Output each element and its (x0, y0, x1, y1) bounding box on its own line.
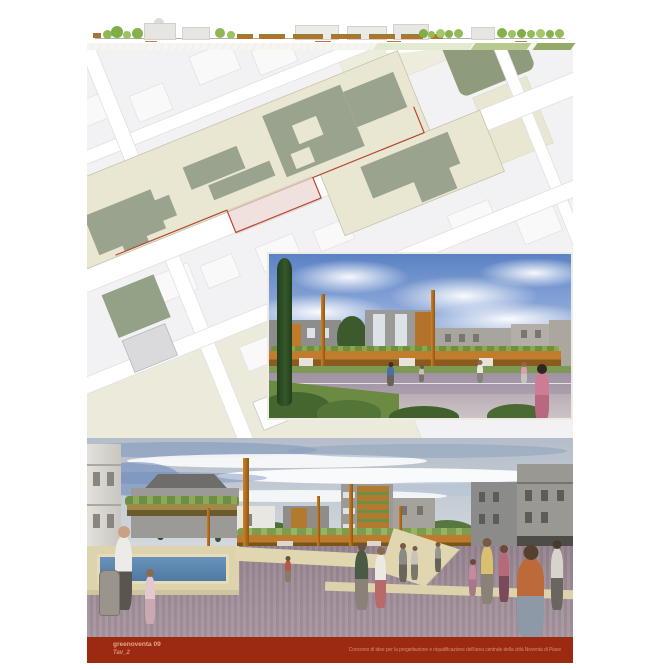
person-figure (419, 368, 424, 382)
window (417, 506, 423, 515)
person-figure (145, 576, 155, 624)
window (459, 334, 465, 342)
person-figure (399, 548, 407, 582)
window (93, 472, 100, 486)
window (107, 514, 114, 528)
tree (497, 28, 507, 38)
window (557, 490, 564, 501)
person-figure (375, 554, 386, 608)
tree (527, 30, 535, 38)
window (525, 490, 532, 501)
window (493, 492, 499, 502)
cornice (87, 504, 121, 506)
person-figure (535, 372, 549, 420)
person-figure (469, 564, 476, 596)
cypress-tree (277, 258, 292, 406)
person-figure (477, 364, 483, 383)
window (479, 492, 485, 502)
tree (123, 31, 131, 39)
person-figure (285, 560, 291, 582)
competition-title: Concorso di idee per la progettazione e … (281, 647, 561, 653)
pergola-band (127, 504, 237, 516)
market-module-elevation (331, 34, 361, 39)
tree (555, 29, 564, 38)
window (493, 514, 499, 524)
window (521, 330, 527, 338)
cloud (289, 260, 409, 294)
shopfront (399, 358, 415, 366)
cornice (517, 482, 573, 484)
window (93, 514, 100, 528)
window (541, 512, 548, 523)
tree (536, 29, 545, 38)
terrain-wedge (471, 43, 532, 50)
tree (419, 29, 428, 38)
sheet-label: Tav_2 (113, 650, 130, 656)
terrain-wedge (373, 43, 474, 50)
caption-dash (387, 41, 401, 42)
tree (445, 30, 453, 38)
window (307, 328, 315, 338)
render-piazza-view (87, 438, 573, 637)
caption-dash (315, 41, 331, 42)
cornice (87, 464, 121, 466)
person-figure (411, 550, 418, 580)
market-module-elevation (237, 34, 253, 39)
window (479, 514, 485, 524)
tree (517, 29, 526, 38)
person-figure (521, 366, 527, 383)
tree (436, 29, 445, 38)
tree (428, 31, 435, 38)
person-figure (499, 552, 509, 602)
project-title: greenoventa 09 (113, 641, 161, 649)
window (107, 472, 114, 486)
tree (132, 28, 143, 39)
tree (215, 28, 225, 38)
person-figure (481, 546, 493, 604)
market-module-elevation (259, 34, 285, 39)
person-figure (551, 548, 563, 610)
tree (508, 30, 516, 38)
person-figure (387, 366, 394, 386)
stroller (99, 570, 120, 616)
render-street-view (267, 252, 573, 420)
window (541, 490, 548, 501)
title-block-footer: greenoventa 09 Tav_2 Concorso di idee pe… (87, 637, 573, 663)
window (445, 334, 451, 342)
tree (111, 26, 123, 38)
tree (454, 29, 463, 38)
tree (227, 31, 235, 39)
terrain-wedge (533, 43, 576, 50)
shopfront (299, 358, 313, 366)
building-elevation (182, 27, 210, 40)
bush (317, 400, 381, 420)
tree (546, 30, 554, 38)
caption-dash (145, 41, 157, 42)
window (535, 330, 541, 338)
urban-elevation-strip (87, 10, 573, 50)
building-elevation (471, 27, 495, 40)
person-figure (517, 558, 544, 637)
window (525, 512, 532, 523)
orange-pole (321, 294, 325, 374)
orange-pole (431, 290, 435, 376)
competition-board: greenoventa 09 Tav_2 Concorso di idee pe… (87, 8, 573, 663)
caption-dash (515, 41, 527, 42)
cloud-streak (287, 444, 567, 458)
window (473, 334, 479, 342)
market-module-elevation (369, 34, 395, 39)
market-module-elevation (293, 34, 323, 39)
person-figure (435, 546, 441, 572)
building-elevation (144, 23, 176, 40)
lane-line (269, 383, 573, 384)
market-cart (93, 33, 101, 38)
person-figure (355, 550, 368, 610)
